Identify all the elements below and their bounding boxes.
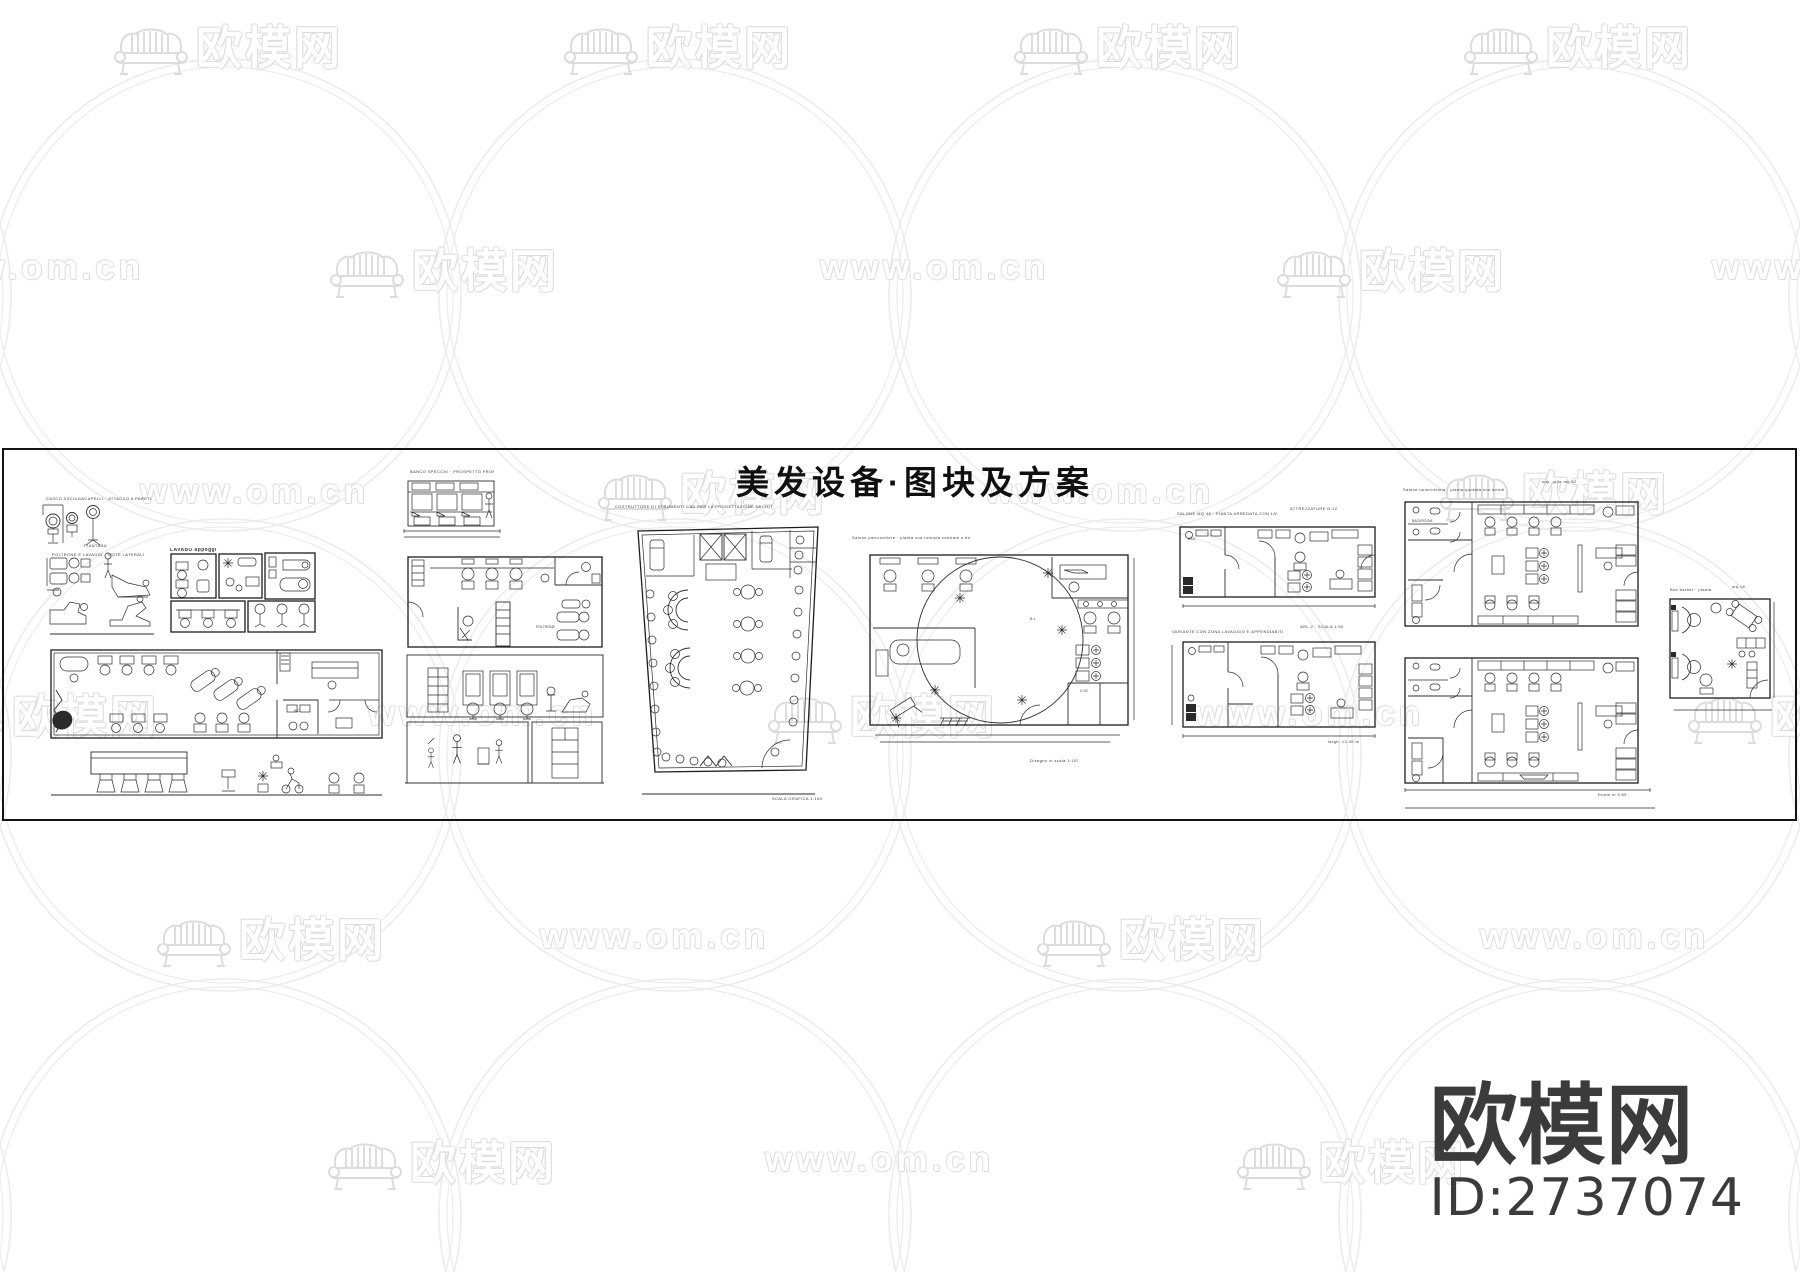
drawing-salon-plan-2 (408, 557, 602, 647)
label-b1: B-1 (1030, 617, 1036, 621)
drawing-people-panels (405, 722, 604, 783)
drawing-mirror-elevation (404, 481, 500, 537)
drawing-plan-K (1172, 642, 1375, 738)
label-23c: 2+3C (1080, 689, 1089, 693)
drawing-plan-N (1670, 599, 1774, 710)
drawing-plan-M (1405, 658, 1655, 808)
drawing-long-salon-plan (51, 650, 382, 738)
drawing-bench-row (51, 752, 382, 795)
drawing-plan-L (1405, 502, 1638, 626)
label-wc: WC (294, 709, 300, 713)
drawing-chair-scenes (47, 553, 154, 634)
drawing-salon-elevation (407, 655, 603, 719)
drawing-lavabo-grid (171, 553, 315, 632)
drawing-circle-plan (870, 555, 1134, 742)
label-poltrone: POLTRONE (536, 625, 556, 629)
label-backroom: BACKROOM (1412, 519, 1433, 523)
band-border (3, 449, 1796, 820)
cad-sheet: POLTRONE WC B-1 2+3C BAG. BACKROOM (0, 0, 1800, 1272)
drawing-plan-J (1180, 527, 1375, 608)
drawing-dryer-blocks (43, 505, 100, 545)
page: { "title": { "text": "美发设备·图块及方案", "subt… (0, 0, 1800, 1272)
label-bag: BAG. (1188, 537, 1196, 541)
drawing-fan-plan (638, 527, 818, 794)
